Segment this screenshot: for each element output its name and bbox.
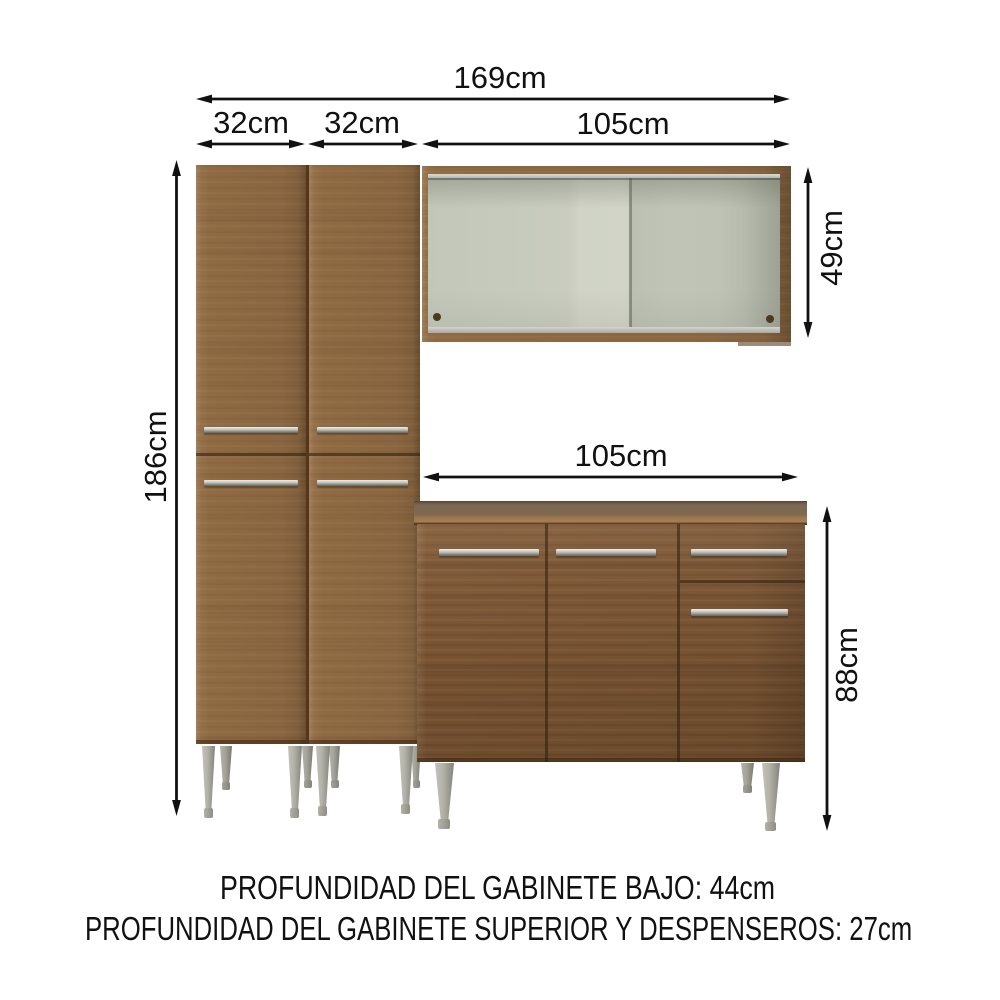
svg-text:186cm: 186cm <box>138 410 173 503</box>
svg-text:105cm: 105cm <box>576 106 669 141</box>
svg-text:169cm: 169cm <box>453 60 546 95</box>
svg-text:32cm: 32cm <box>213 105 289 140</box>
svg-text:32cm: 32cm <box>324 105 400 140</box>
svg-text:49cm: 49cm <box>814 210 849 286</box>
svg-text:88cm: 88cm <box>829 627 864 703</box>
svg-text:105cm: 105cm <box>574 438 667 473</box>
